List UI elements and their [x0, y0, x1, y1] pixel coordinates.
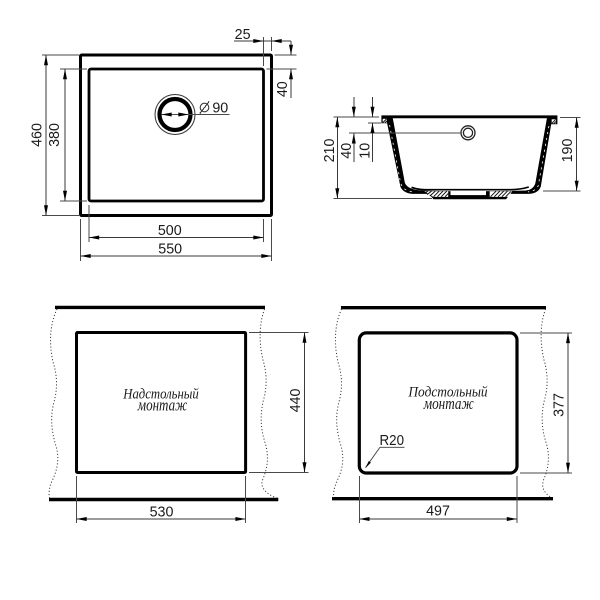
svg-text:190: 190 — [560, 139, 576, 163]
svg-text:550: 550 — [158, 242, 182, 258]
svg-text:90: 90 — [212, 101, 228, 117]
svg-text:40: 40 — [339, 143, 355, 159]
svg-text:440: 440 — [288, 389, 304, 413]
svg-text:377: 377 — [552, 393, 568, 417]
svg-text:460: 460 — [30, 123, 46, 147]
svg-text:500: 500 — [158, 223, 182, 239]
svg-text:монтаж: монтаж — [423, 394, 474, 413]
svg-text:380: 380 — [47, 123, 63, 147]
svg-text:530: 530 — [150, 504, 174, 520]
svg-text:40: 40 — [275, 81, 291, 97]
svg-text:25: 25 — [235, 27, 251, 43]
svg-text:монтаж: монтаж — [137, 395, 188, 414]
svg-text:R20: R20 — [380, 433, 405, 449]
svg-text:210: 210 — [322, 139, 338, 163]
svg-text:497: 497 — [426, 504, 450, 520]
svg-text:10: 10 — [357, 143, 373, 159]
